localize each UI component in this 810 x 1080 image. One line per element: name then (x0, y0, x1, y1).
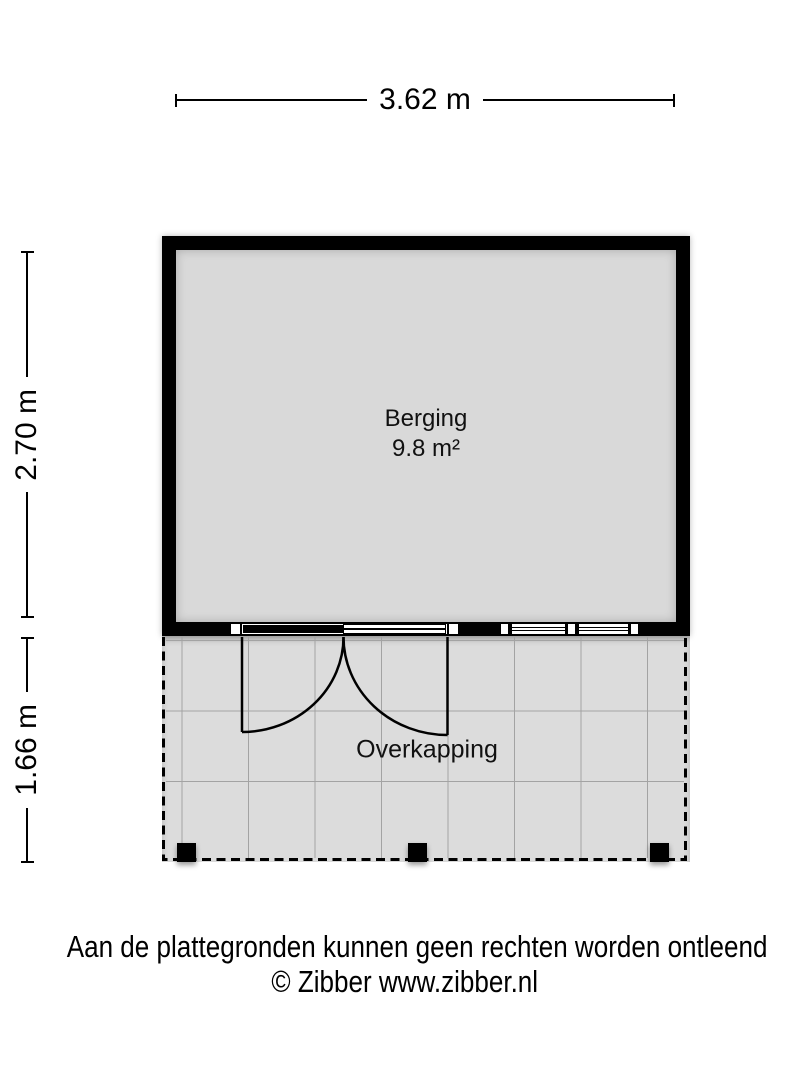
dimension-line (26, 253, 28, 377)
dimension-line (26, 492, 28, 616)
dimension-line (177, 99, 367, 101)
floor-plan: 3.62 m 2.70 m 1.66 m (0, 0, 810, 1080)
canopy-depth-dimension: 1.66 m (14, 637, 40, 863)
canopy-post-middle (408, 843, 427, 862)
width-dimension-label: 3.62 m (367, 87, 483, 113)
dimension-tick (21, 861, 34, 863)
dimension-line (26, 808, 28, 861)
room-name-label: Berging (385, 404, 468, 434)
canopy-depth-dimension-label: 1.66 m (10, 692, 44, 808)
room-depth-dimension: 2.70 m (14, 251, 40, 618)
window-2 (577, 622, 630, 636)
door-jamb-right (447, 622, 460, 636)
dimension-tick (21, 616, 34, 618)
footer: Aan de plattegronden kunnen geen rechten… (0, 929, 810, 999)
canopy-post-right (650, 843, 669, 862)
room-depth-dimension-label: 2.70 m (10, 377, 44, 493)
dimension-line (26, 639, 28, 692)
disclaimer-text: Aan de plattegronden kunnen geen rechten… (67, 929, 768, 964)
room-label-group: Berging 9.8 m² (385, 404, 468, 464)
width-dimension: 3.62 m (175, 87, 675, 113)
canopy-post-left (177, 843, 196, 862)
window-jamb-left (499, 622, 510, 636)
window-jamb-right (629, 622, 640, 636)
dimension-tick (673, 94, 675, 107)
credit-text: © Zibber www.zibber.nl (272, 964, 539, 999)
double-door (242, 622, 447, 636)
canopy-name-label: Overkapping (356, 736, 498, 765)
window-mullion (566, 622, 577, 636)
door-leaf-left (243, 625, 343, 633)
dimension-line (483, 99, 673, 101)
room-area-label: 9.8 m² (385, 434, 468, 464)
window-1 (510, 622, 567, 636)
door-jamb-left (229, 622, 242, 636)
door-leaf-right (343, 624, 446, 634)
